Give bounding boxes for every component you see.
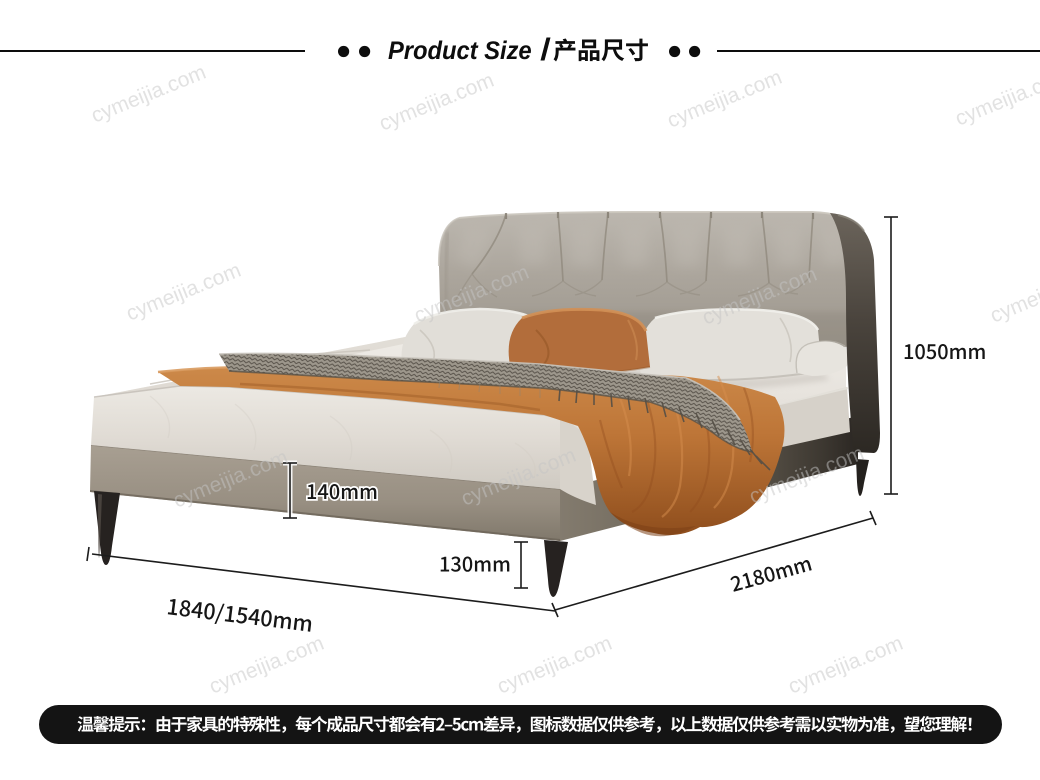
svg-text:cymeijia.com: cymeijia.com — [987, 261, 1040, 328]
svg-text:cymeijia.com: cymeijia.com — [785, 632, 906, 699]
svg-text:cymeijia.com: cymeijia.com — [206, 632, 327, 699]
svg-text:cymeijia.com: cymeijia.com — [88, 61, 209, 128]
svg-text:cymeijia.com: cymeijia.com — [952, 64, 1040, 131]
svg-text:cymeijia.com: cymeijia.com — [494, 632, 615, 699]
svg-text:cymeijia.com: cymeijia.com — [123, 259, 244, 326]
svg-text:cymeijia.com: cymeijia.com — [664, 66, 785, 133]
svg-text:cymeijia.com: cymeijia.com — [376, 69, 497, 136]
